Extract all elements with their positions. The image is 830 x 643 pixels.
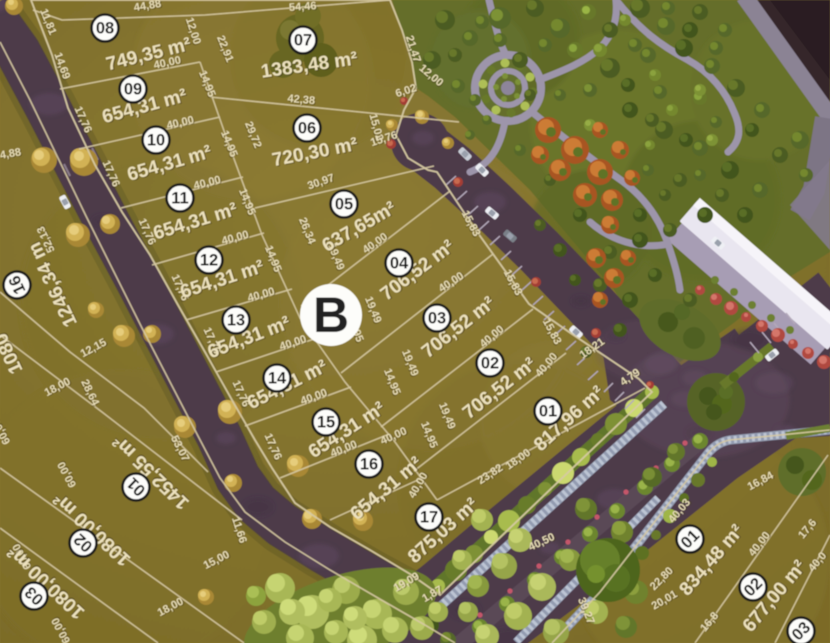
svg-text:01: 01 (539, 403, 557, 421)
svg-text:03: 03 (428, 310, 446, 328)
svg-text:07: 07 (294, 32, 312, 50)
svg-text:17: 17 (420, 509, 438, 527)
svg-text:42,38: 42,38 (287, 93, 315, 107)
svg-text:09: 09 (124, 81, 142, 99)
svg-text:04: 04 (390, 255, 409, 273)
svg-text:05: 05 (335, 196, 353, 214)
svg-text:11: 11 (171, 190, 188, 208)
svg-text:12: 12 (200, 252, 218, 270)
svg-text:14: 14 (268, 370, 287, 388)
svg-text:13: 13 (227, 312, 245, 330)
svg-text:08: 08 (96, 20, 114, 38)
svg-text:10: 10 (147, 132, 165, 150)
svg-text:06: 06 (298, 120, 316, 138)
svg-text:16: 16 (360, 456, 378, 474)
svg-text:02: 02 (481, 355, 499, 373)
svg-text:15: 15 (317, 414, 335, 432)
svg-text:B: B (313, 287, 349, 343)
svg-text:54,46: 54,46 (289, 0, 317, 14)
